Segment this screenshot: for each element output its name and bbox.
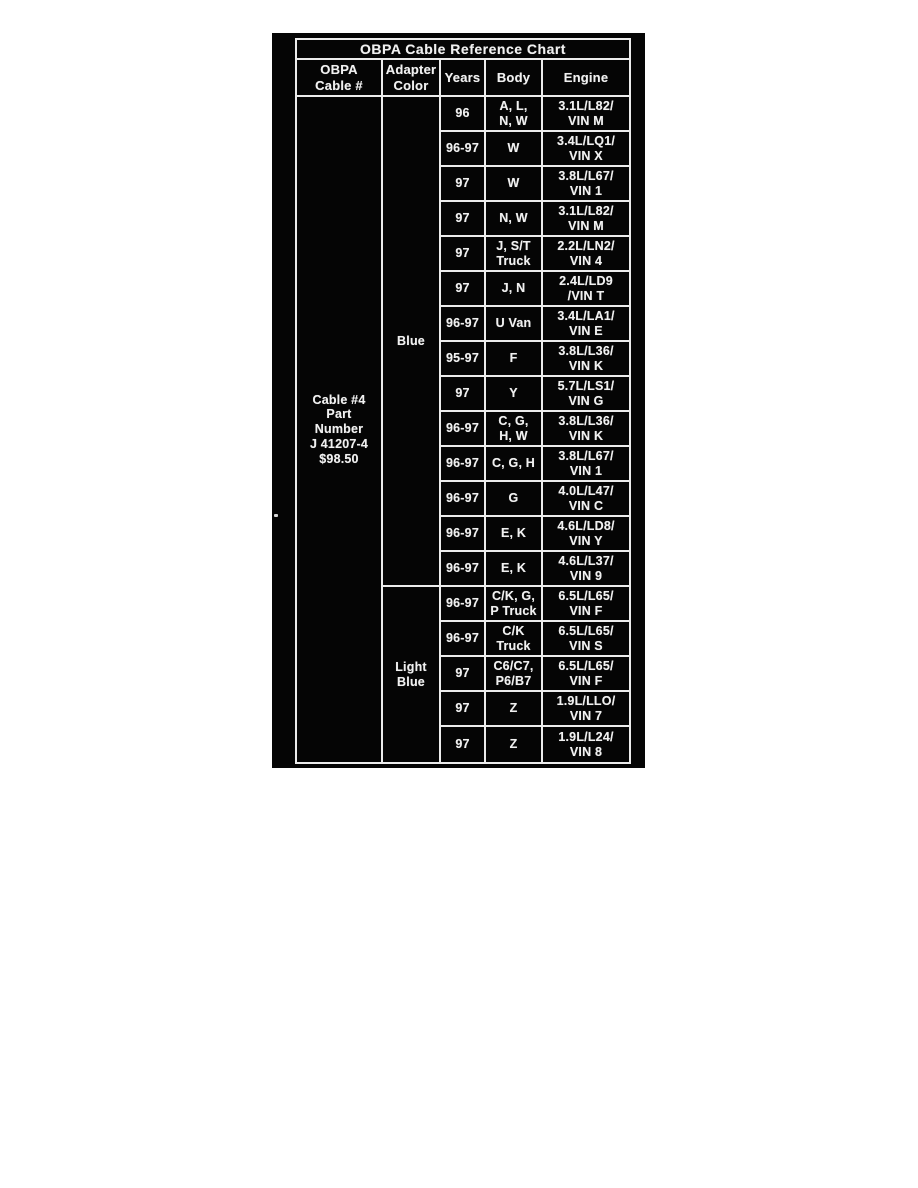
years-cell: 97 xyxy=(441,272,486,307)
years-cell: 97 xyxy=(441,377,486,412)
body-cell: F xyxy=(486,342,543,377)
engine-cell: 2.4L/LD9 /VIN T xyxy=(543,272,629,307)
scan-black-panel: OBPA Cable Reference Chart OBPA Cable # … xyxy=(272,33,645,768)
scan-artifact xyxy=(274,514,278,517)
engine-cell: 6.5L/L65/ VIN S xyxy=(543,622,629,657)
body-cell: J, S/T Truck xyxy=(486,237,543,272)
engine-cell: 1.9L/LLO/ VIN 7 xyxy=(543,692,629,727)
engine-cell: 4.0L/L47/ VIN C xyxy=(543,482,629,517)
body-cell: C/K Truck xyxy=(486,622,543,657)
engine-cell: 3.8L/L67/ VIN 1 xyxy=(543,447,629,482)
body-cell: U Van xyxy=(486,307,543,342)
body-cell: C, G, H, W xyxy=(486,412,543,447)
body-cell: J, N xyxy=(486,272,543,307)
header-engine: Engine xyxy=(543,60,629,97)
engine-cell: 3.1L/L82/ VIN M xyxy=(543,202,629,237)
engine-cell: 3.8L/L36/ VIN K xyxy=(543,412,629,447)
body-cell: N, W xyxy=(486,202,543,237)
years-cell: 96-97 xyxy=(441,517,486,552)
engine-cell: 3.4L/LQ1/ VIN X xyxy=(543,132,629,167)
years-cell: 97 xyxy=(441,202,486,237)
years-cell: 96-97 xyxy=(441,412,486,447)
engine-cell: 1.9L/L24/ VIN 8 xyxy=(543,727,629,762)
engine-cell: 4.6L/L37/ VIN 9 xyxy=(543,552,629,587)
engine-cell: 3.8L/L67/ VIN 1 xyxy=(543,167,629,202)
scanned-page: OBPA Cable Reference Chart OBPA Cable # … xyxy=(0,0,918,1188)
body-cell: Z xyxy=(486,692,543,727)
cable-info-cell: Cable #4 Part Number J 41207-4 $98.50 xyxy=(297,97,383,762)
adapter-color-blue-cell: Blue xyxy=(383,97,441,587)
years-cell: 97 xyxy=(441,727,486,762)
years-cell: 96-97 xyxy=(441,307,486,342)
body-cell: W xyxy=(486,167,543,202)
adapter-color-lightblue-cell: Light Blue xyxy=(383,587,441,762)
body-cell: A, L, N, W xyxy=(486,97,543,132)
body-cell: C/K, G, P Truck xyxy=(486,587,543,622)
years-cell: 96-97 xyxy=(441,622,486,657)
years-cell: 96-97 xyxy=(441,587,486,622)
header-adapter-color: Adapter Color xyxy=(383,60,441,97)
body-cell: C6/C7, P6/B7 xyxy=(486,657,543,692)
body-cell: Y xyxy=(486,377,543,412)
engine-cell: 3.4L/LA1/ VIN E xyxy=(543,307,629,342)
years-cell: 97 xyxy=(441,692,486,727)
body-cell: W xyxy=(486,132,543,167)
years-cell: 96-97 xyxy=(441,132,486,167)
years-cell: 97 xyxy=(441,237,486,272)
years-cell: 96-97 xyxy=(441,552,486,587)
years-cell: 96-97 xyxy=(441,482,486,517)
body-cell: Z xyxy=(486,727,543,762)
engine-cell: 4.6L/LD8/ VIN Y xyxy=(543,517,629,552)
table-title: OBPA Cable Reference Chart xyxy=(297,40,629,60)
engine-cell: 3.8L/L36/ VIN K xyxy=(543,342,629,377)
years-cell: 97 xyxy=(441,167,486,202)
header-years: Years xyxy=(441,60,486,97)
body-cell: E, K xyxy=(486,517,543,552)
body-cell: E, K xyxy=(486,552,543,587)
body-cell: C, G, H xyxy=(486,447,543,482)
engine-cell: 5.7L/LS1/ VIN G xyxy=(543,377,629,412)
engine-cell: 3.1L/L82/ VIN M xyxy=(543,97,629,132)
years-cell: 96 xyxy=(441,97,486,132)
reference-table: OBPA Cable Reference Chart OBPA Cable # … xyxy=(295,38,631,764)
years-cell: 95-97 xyxy=(441,342,486,377)
years-cell: 96-97 xyxy=(441,447,486,482)
body-cell: G xyxy=(486,482,543,517)
engine-cell: 2.2L/LN2/ VIN 4 xyxy=(543,237,629,272)
engine-cell: 6.5L/L65/ VIN F xyxy=(543,587,629,622)
engine-cell: 6.5L/L65/ VIN F xyxy=(543,657,629,692)
years-cell: 97 xyxy=(441,657,486,692)
header-body: Body xyxy=(486,60,543,97)
header-obpa-cable: OBPA Cable # xyxy=(297,60,383,97)
